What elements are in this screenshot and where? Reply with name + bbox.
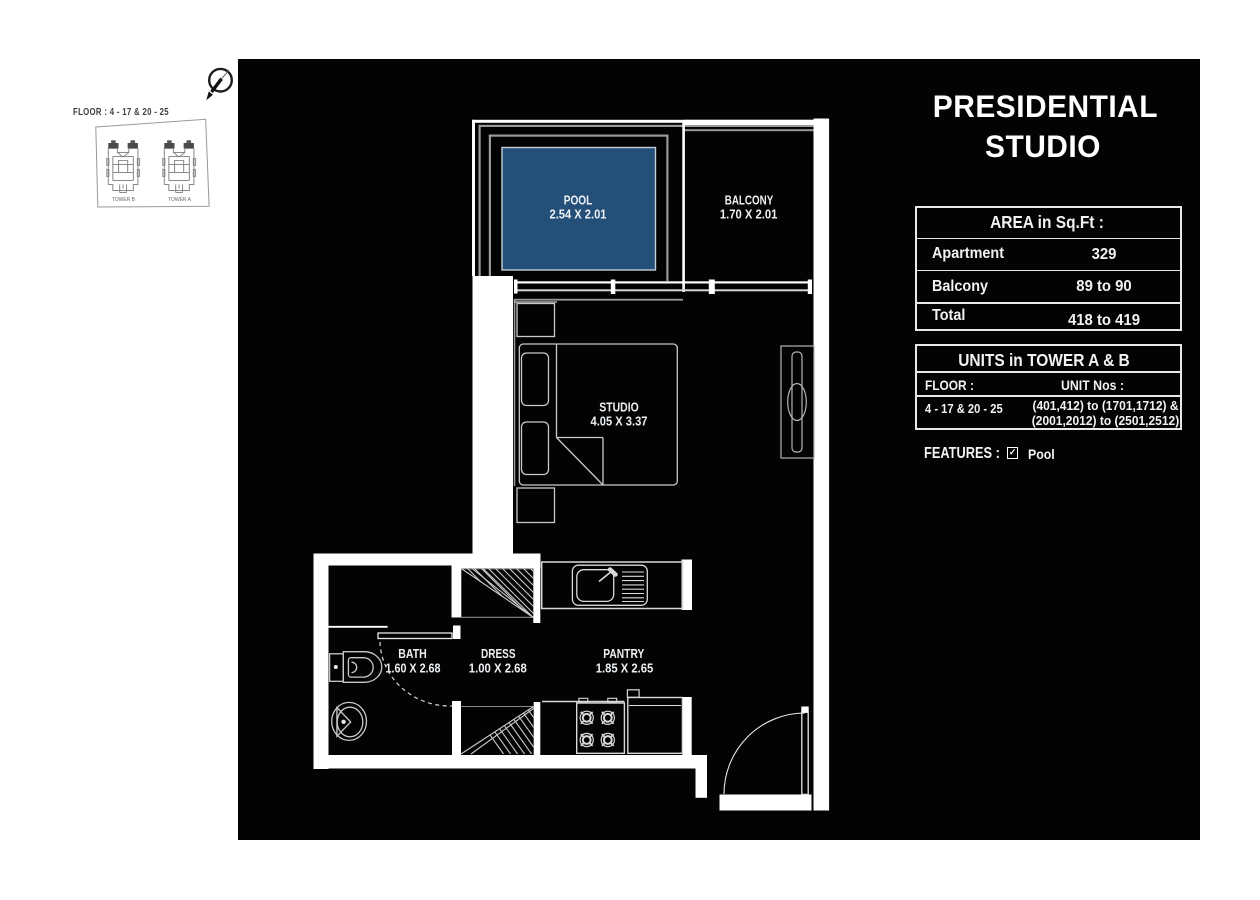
svg-text:BATH: BATH — [398, 647, 427, 661]
svg-text:TOWER B: TOWER B — [112, 197, 136, 203]
svg-text:TOWER A: TOWER A — [168, 197, 192, 203]
svg-text:POOL: POOL — [564, 194, 593, 208]
svg-text:PANTRY: PANTRY — [603, 647, 645, 661]
svg-text:1.00 X 2.68: 1.00 X 2.68 — [469, 662, 527, 676]
svg-text:1.70 X 2.01: 1.70 X 2.01 — [720, 208, 778, 222]
svg-text:2.54 X 2.01: 2.54 X 2.01 — [550, 208, 607, 222]
svg-text:1.85 X 2.65: 1.85 X 2.65 — [596, 662, 654, 676]
svg-text:4.05 X 3.37: 4.05 X 3.37 — [591, 415, 648, 429]
svg-text:STUDIO: STUDIO — [599, 401, 639, 415]
svg-text:DRESS: DRESS — [481, 647, 516, 661]
svg-text:1.60 X 2.68: 1.60 X 2.68 — [386, 662, 441, 676]
svg-text:BALCONY: BALCONY — [725, 194, 774, 208]
